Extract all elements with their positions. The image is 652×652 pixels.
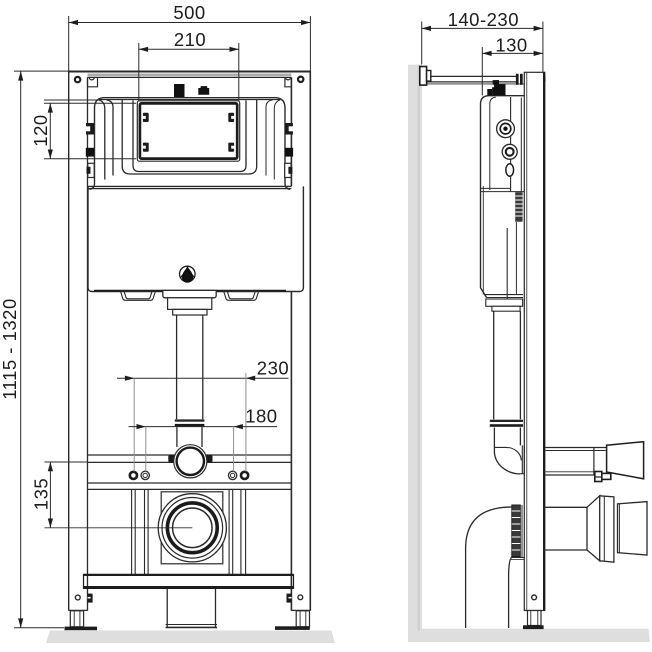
svg-text:135: 135	[31, 478, 52, 510]
svg-text:1115 - 1320: 1115 - 1320	[0, 298, 20, 400]
svg-text:130: 130	[495, 34, 527, 55]
svg-text:140-230: 140-230	[448, 9, 519, 30]
svg-text:120: 120	[30, 114, 51, 146]
svg-text:210: 210	[174, 29, 206, 50]
svg-text:500: 500	[173, 2, 205, 23]
svg-text:230: 230	[257, 358, 289, 379]
svg-text:180: 180	[245, 405, 277, 426]
